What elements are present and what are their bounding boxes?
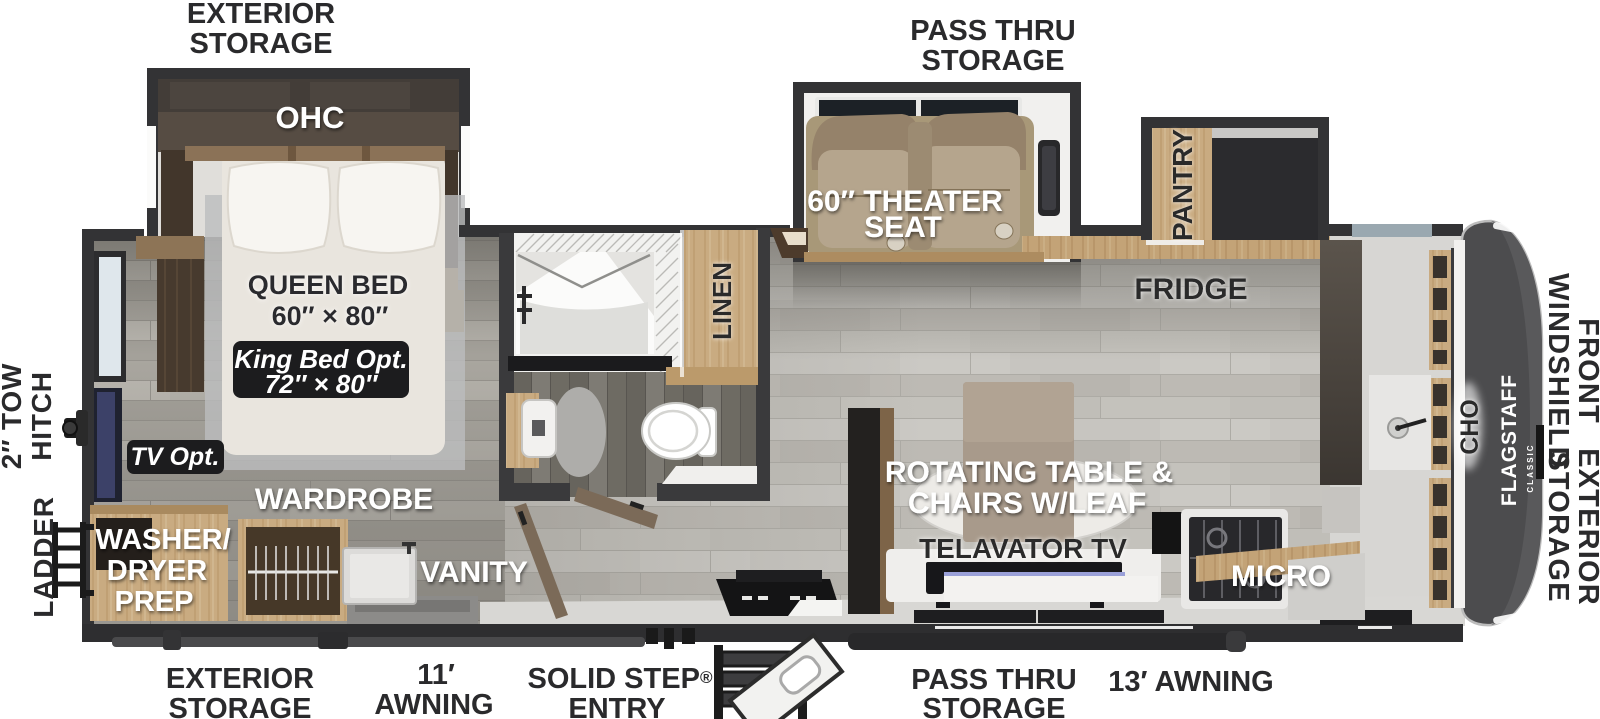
svg-text:EXTERIOR: EXTERIOR	[187, 0, 335, 30]
svg-text:SOLID STEP®: SOLID STEP®	[528, 663, 713, 695]
svg-text:ROTATING TABLE &: ROTATING TABLE &	[885, 456, 1173, 489]
svg-text:QUEEN BED: QUEEN BED	[248, 270, 409, 300]
svg-text:ENTRY: ENTRY	[568, 693, 665, 719]
svg-text:60″ × 80″: 60″ × 80″	[272, 301, 389, 331]
svg-text:TV Opt.: TV Opt.	[131, 443, 220, 471]
svg-text:2″ TOW: 2″ TOW	[0, 363, 27, 469]
svg-text:AWNING: AWNING	[374, 689, 493, 719]
svg-text:LINEN: LINEN	[707, 262, 737, 340]
svg-text:FRONT: FRONT	[1572, 318, 1600, 424]
svg-text:MICRO: MICRO	[1231, 560, 1331, 593]
svg-text:11′: 11′	[417, 659, 455, 691]
svg-text:SEAT: SEAT	[864, 211, 942, 244]
svg-text:PASS THRU: PASS THRU	[911, 664, 1076, 696]
svg-text:FLAGSTAFF: FLAGSTAFF	[1498, 374, 1521, 506]
svg-text:WASHER/: WASHER/	[95, 524, 230, 556]
svg-text:CHAIRS W/LEAF: CHAIRS W/LEAF	[908, 487, 1146, 520]
svg-text:HITCH: HITCH	[26, 371, 57, 461]
svg-text:CLASSIC: CLASSIC	[1526, 443, 1535, 492]
svg-text:PASS THRU: PASS THRU	[910, 15, 1075, 47]
svg-text:FRIDGE: FRIDGE	[1134, 273, 1247, 306]
svg-text:13′ AWNING: 13′ AWNING	[1108, 666, 1273, 698]
svg-text:STORAGE: STORAGE	[169, 693, 312, 719]
svg-text:PREP: PREP	[115, 586, 194, 618]
svg-text:STORAGE: STORAGE	[922, 45, 1065, 77]
svg-text:WINDSHIELD: WINDSHIELD	[1542, 273, 1574, 469]
svg-text:STORAGE: STORAGE	[1542, 451, 1574, 602]
svg-text:EXTERIOR: EXTERIOR	[166, 663, 314, 695]
svg-text:WARDROBE: WARDROBE	[255, 483, 433, 516]
svg-text:PANTRY: PANTRY	[1167, 129, 1198, 241]
svg-text:VANITY: VANITY	[420, 556, 528, 589]
svg-text:72″ × 80″: 72″ × 80″	[265, 369, 379, 399]
svg-text:STORAGE: STORAGE	[923, 693, 1066, 719]
svg-text:LADDER: LADDER	[28, 496, 59, 617]
svg-text:EXTERIOR: EXTERIOR	[1572, 448, 1600, 606]
svg-text:CHO: CHO	[1456, 399, 1484, 455]
svg-text:OHC: OHC	[276, 100, 345, 135]
svg-text:STORAGE: STORAGE	[190, 28, 333, 60]
svg-text:TELAVATOR TV: TELAVATOR TV	[919, 533, 1127, 564]
svg-text:DRYER: DRYER	[107, 555, 207, 587]
